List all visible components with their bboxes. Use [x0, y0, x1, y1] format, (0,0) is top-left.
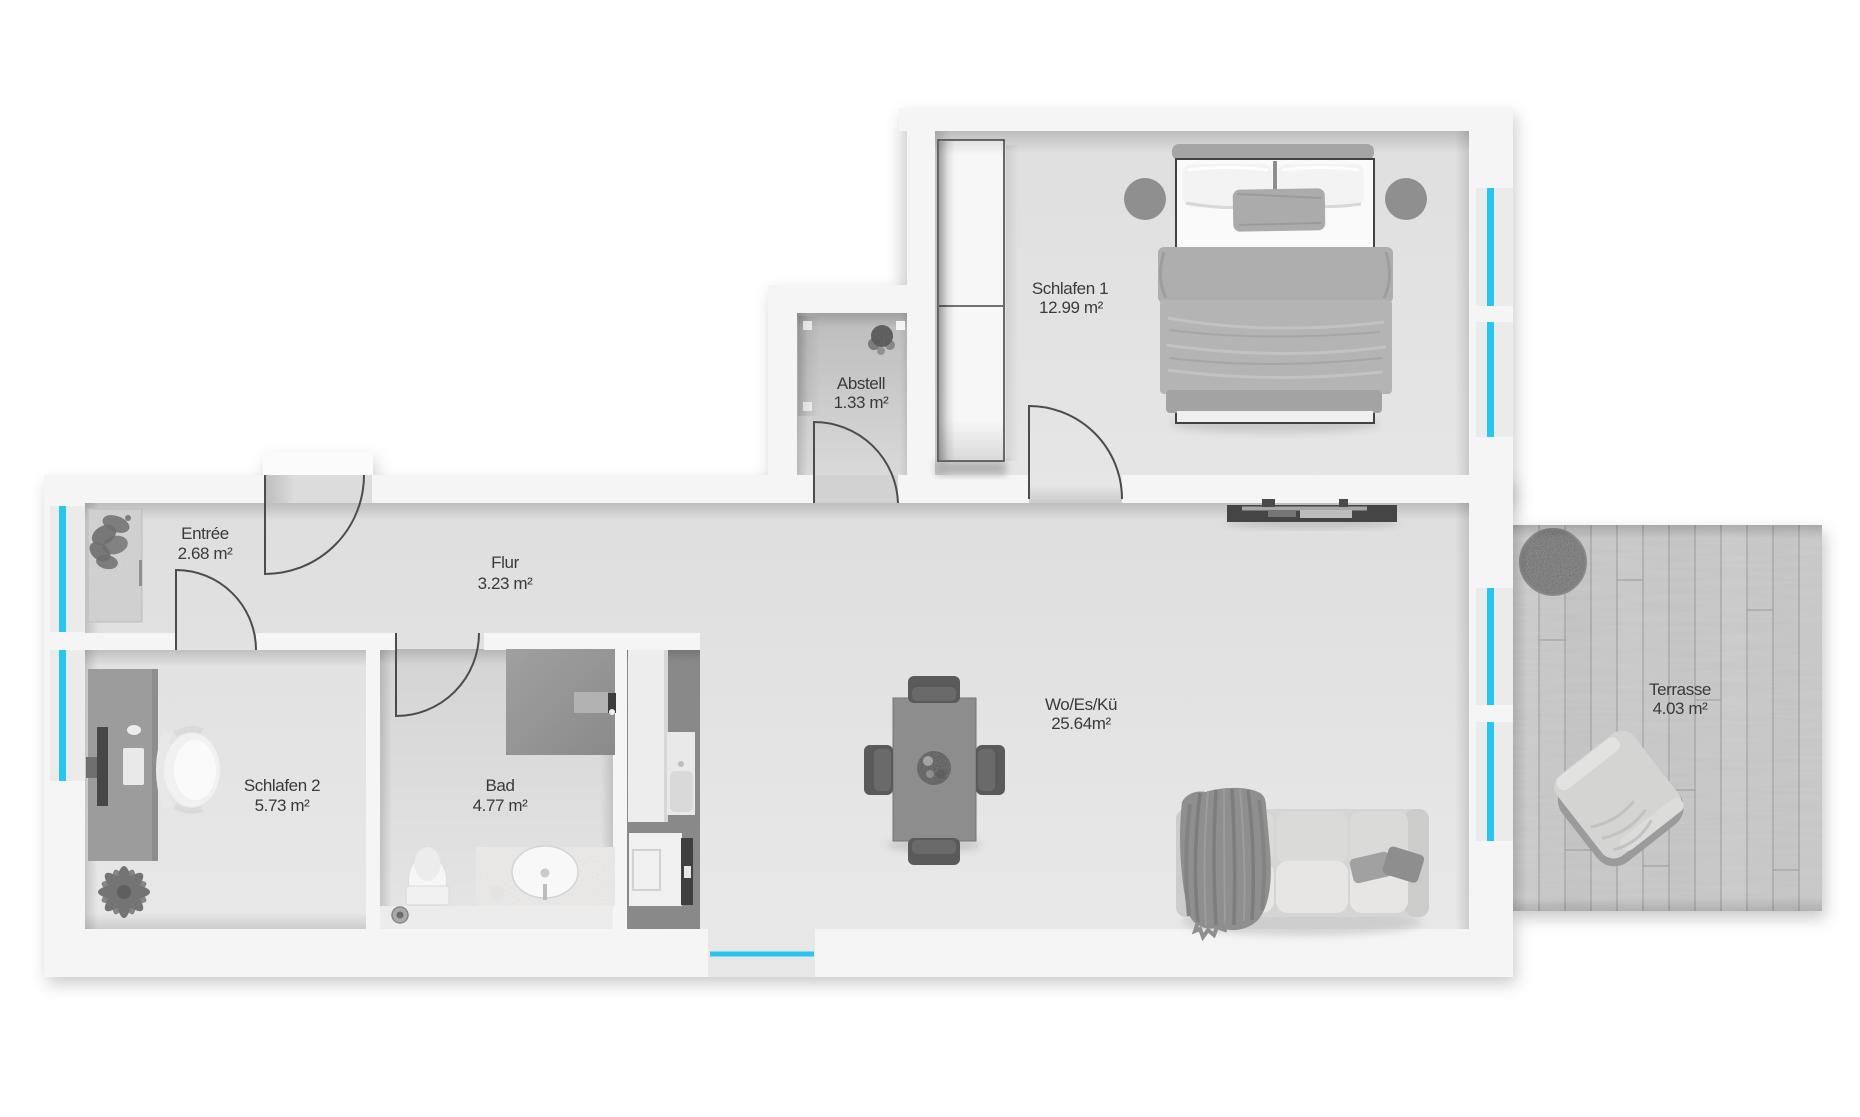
- svg-text:3.23 m²: 3.23 m²: [478, 574, 534, 593]
- svg-text:Abstell: Abstell: [837, 374, 885, 393]
- svg-text:Terrasse: Terrasse: [1649, 680, 1711, 699]
- svg-text:2.68 m²: 2.68 m²: [178, 544, 234, 563]
- svg-text:4.03 m²: 4.03 m²: [1653, 699, 1709, 718]
- svg-text:5.73 m²: 5.73 m²: [255, 796, 311, 815]
- svg-text:Flur: Flur: [491, 553, 519, 572]
- svg-text:1.33 m²: 1.33 m²: [834, 393, 890, 412]
- svg-text:Entrée: Entrée: [181, 524, 229, 543]
- svg-text:Schlafen 2: Schlafen 2: [244, 776, 320, 795]
- svg-text:25.64m²: 25.64m²: [1051, 714, 1111, 733]
- svg-text:Bad: Bad: [485, 776, 514, 795]
- svg-text:4.77 m²: 4.77 m²: [473, 796, 529, 815]
- svg-text:Wo/Es/Kü: Wo/Es/Kü: [1045, 695, 1117, 714]
- svg-text:12.99 m²: 12.99 m²: [1039, 298, 1104, 317]
- svg-text:Schlafen 1: Schlafen 1: [1032, 279, 1108, 298]
